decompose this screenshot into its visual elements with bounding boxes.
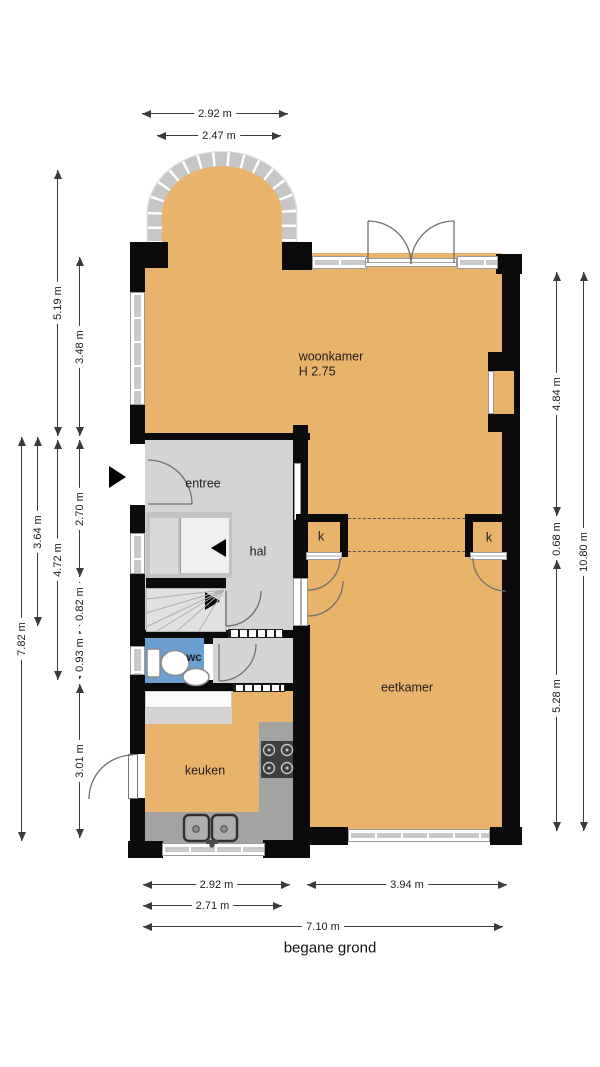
dimension-label: 2.47 m [198, 130, 240, 142]
dimension-label: 0.93 m [74, 634, 86, 676]
dimension-label: 5.19 m [52, 282, 64, 324]
dimension-onder-totaal: 7.10 m [143, 926, 503, 927]
dimension-links-364: 3.64 m [37, 437, 38, 626]
dimension-label: 10.80 m [578, 528, 590, 576]
dimension-top-erker-binnen: 2.47 m [157, 135, 281, 136]
dimension-label: 3.48 m [74, 326, 86, 368]
dimension-onder-eetkamer: 3.94 m [307, 884, 507, 885]
dimension-label: 7.10 m [302, 921, 344, 933]
dimension-label: 3.64 m [32, 511, 44, 553]
dimension-top-erker-buiten: 2.92 m [142, 113, 288, 114]
dimension-links-472: 4.72 m [57, 440, 58, 680]
dimension-links-348: 3.48 m [79, 257, 80, 436]
dimension-label: 4.84 m [551, 373, 563, 415]
dimension-label: 7.82 m [16, 618, 28, 660]
dimension-rechts-484: 4.84 m [556, 272, 557, 516]
dimension-links-519: 5.19 m [57, 170, 58, 436]
dimension-onder-keuken: 2.92 m [143, 884, 290, 885]
dimension-label: 2.71 m [192, 900, 234, 912]
dimension-label: 2.92 m [196, 879, 238, 891]
dimension-label: 5.28 m [551, 675, 563, 717]
dimension-label: 2.70 m [74, 488, 86, 530]
dimension-label: 3.01 m [74, 740, 86, 782]
plan-title: begane grond [284, 940, 377, 957]
dimension-links-093: 0.93 m [79, 631, 80, 679]
dimension-links-270: 2.70 m [79, 440, 80, 577]
dimension-label: 2.92 m [194, 108, 236, 120]
dimension-rechts-068: 0.68 m [556, 521, 557, 556]
dimension-label: 4.72 m [52, 539, 64, 581]
dimension-links-301: 3.01 m [79, 684, 80, 838]
dimension-rechts-totaal: 10.80 m [583, 272, 584, 831]
dimension-label: 0.68 m [551, 518, 563, 560]
floor-plan: woonkamerH 2.75entreehalwckeukeneetkamer… [0, 0, 600, 1067]
dimension-label: 3.94 m [386, 879, 428, 891]
dimension-rechts-528: 5.28 m [556, 560, 557, 831]
dimension-label: 0.82 m [74, 583, 86, 625]
dimension-onder-271: 2.71 m [143, 905, 282, 906]
dimension-lines: 2.92 m2.47 m7.82 m3.64 m5.19 m4.72 m3.48… [0, 0, 600, 1067]
dimension-links-082: 0.82 m [79, 582, 80, 626]
dimension-links-totaal: 7.82 m [21, 437, 22, 841]
